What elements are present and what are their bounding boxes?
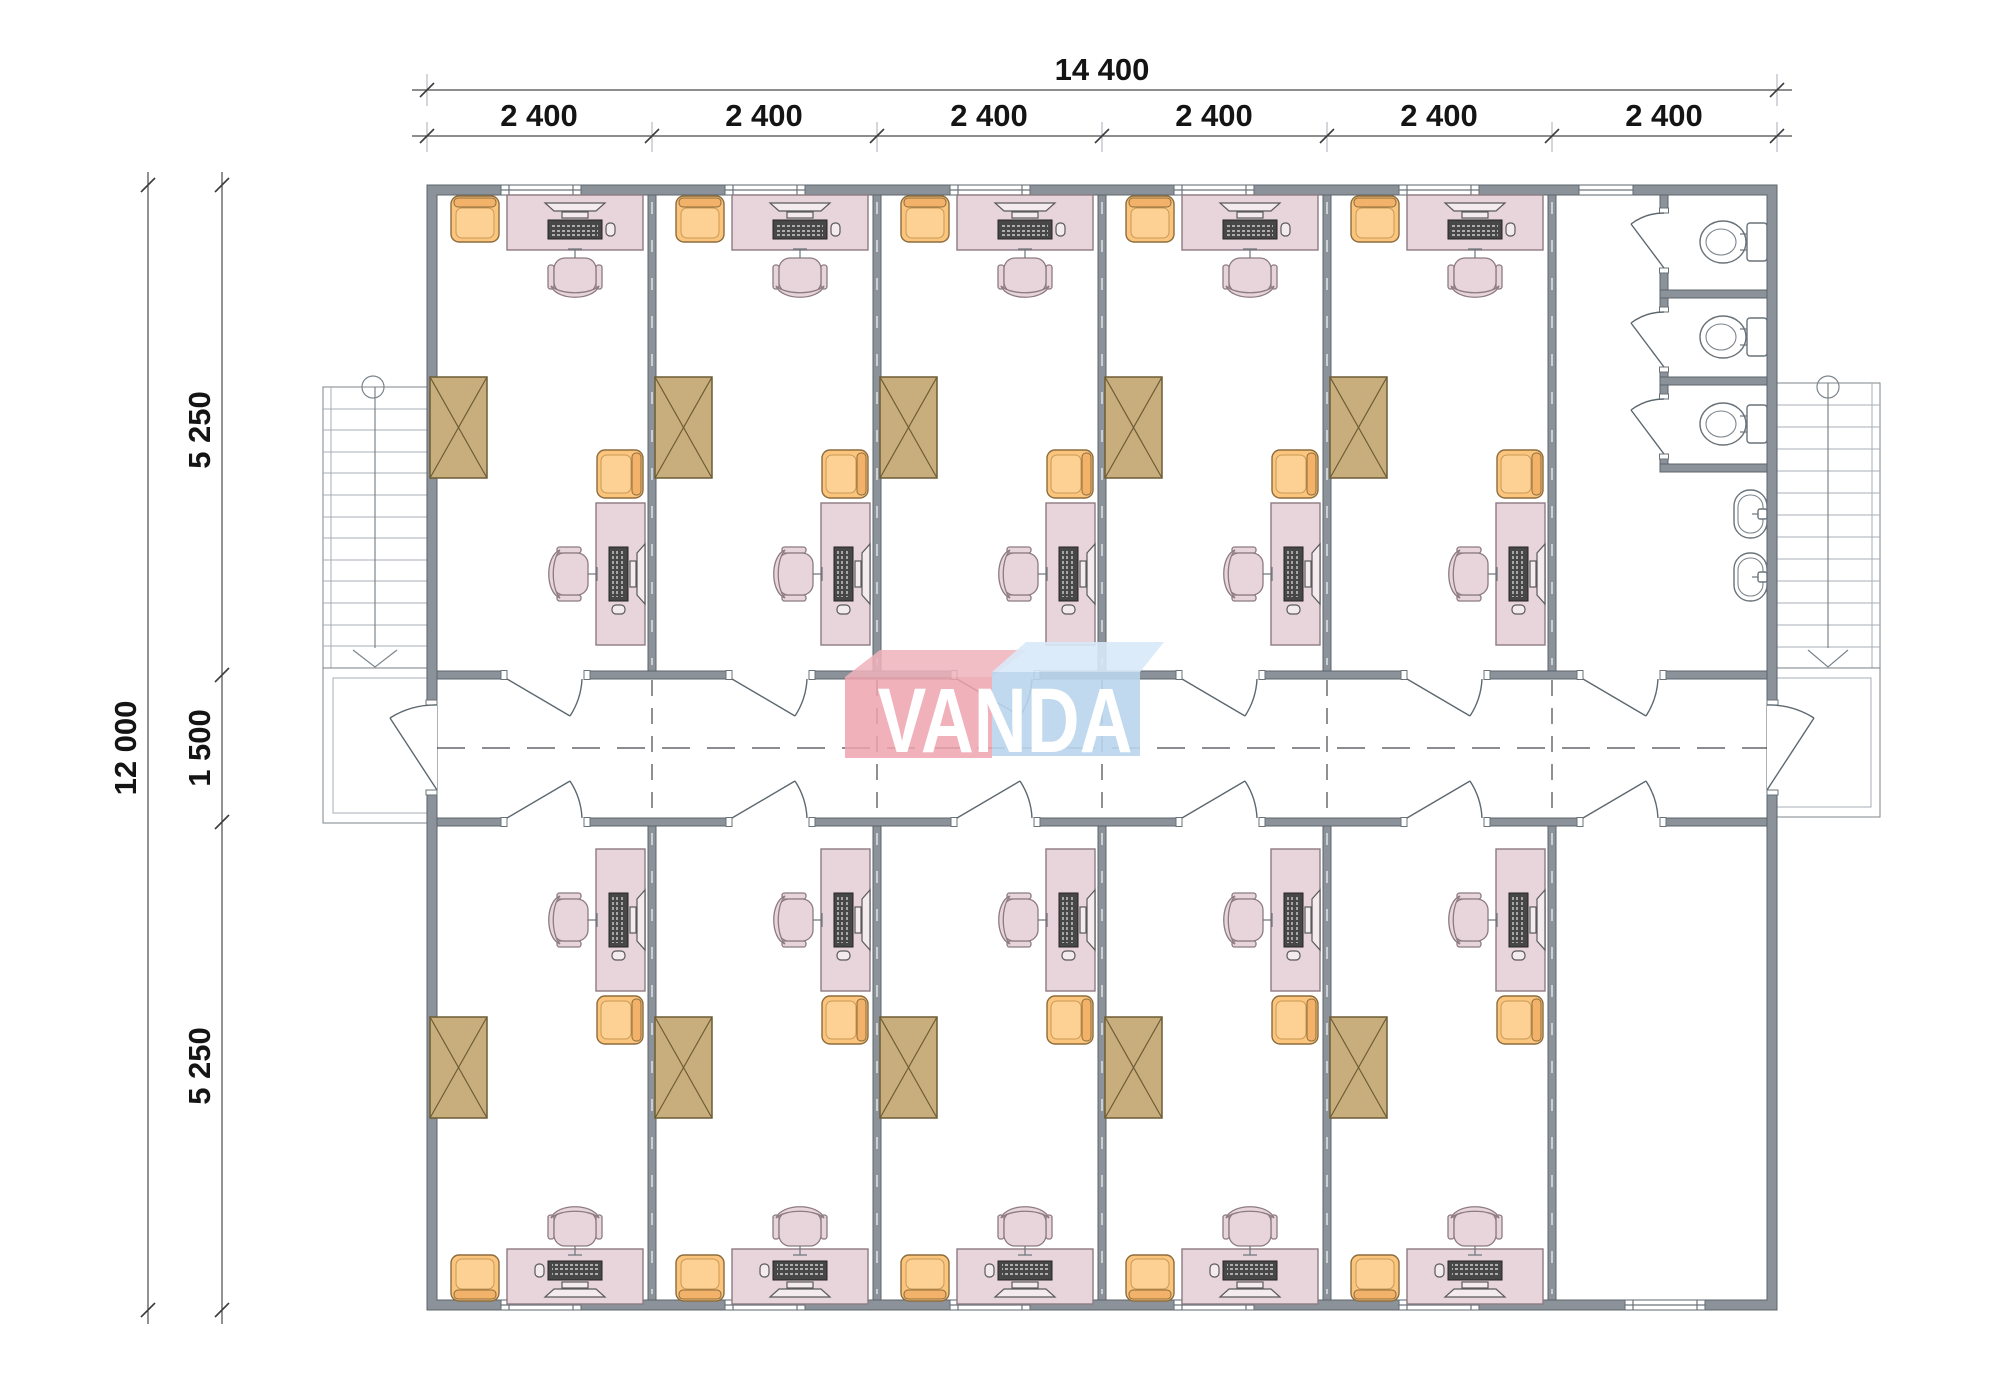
- office-room-bottom-3: [880, 849, 1095, 1304]
- dim-rooms-top-depth: 5 250: [182, 391, 217, 469]
- office-room-top-3: [880, 195, 1095, 645]
- porch-left: [323, 668, 427, 823]
- dimension-left: 12 000 5 250 1 500 5 250: [108, 172, 229, 1324]
- dim-bay-5: 2 400: [1400, 98, 1478, 133]
- toilet-icon: [1700, 403, 1767, 445]
- offices-top-row: [430, 195, 1545, 645]
- dim-rooms-bottom-depth: 5 250: [182, 1027, 217, 1105]
- office-room-bottom-2: [655, 849, 870, 1304]
- staircase-right: [1777, 376, 1880, 668]
- stall-door-3: [1631, 394, 1669, 459]
- office-room-bottom-1: [430, 849, 645, 1304]
- door-washroom: [1577, 670, 1666, 716]
- porch-right: [1777, 668, 1880, 817]
- dimension-top: 14 400 2 400 2 400 2 400 2 400 2 400 2 4…: [412, 52, 1792, 152]
- door-office-top-1: [501, 670, 590, 716]
- office-room-bottom-4: [1105, 849, 1320, 1304]
- office-room-top-4: [1105, 195, 1320, 645]
- stall-door-2: [1631, 307, 1669, 372]
- door-room-bottom-6: [1577, 781, 1666, 827]
- dim-bay-6: 2 400: [1625, 98, 1703, 133]
- office-room-top-5: [1330, 195, 1545, 645]
- dim-bay-1: 2 400: [500, 98, 578, 133]
- door-office-bottom-4: [1176, 781, 1265, 827]
- office-room-top-1: [430, 195, 645, 645]
- dim-bay-4: 2 400: [1175, 98, 1253, 133]
- door-office-top-4: [1176, 670, 1265, 716]
- dim-bay-2: 2 400: [725, 98, 803, 133]
- toilet-icon: [1700, 221, 1767, 263]
- sink-icon: [1734, 490, 1767, 538]
- staircase-left: [323, 376, 427, 668]
- door-office-bottom-3: [951, 781, 1040, 827]
- door-office-bottom-2: [726, 781, 815, 827]
- dim-corridor-width: 1 500: [182, 709, 217, 787]
- washroom: [1631, 195, 1767, 601]
- office-room-top-2: [655, 195, 870, 645]
- floor-plan-drawing: VANDA 14 400 2 400 2 400 2 400 2 400 2 4…: [0, 0, 2000, 1380]
- stall-door-1: [1631, 208, 1669, 273]
- toilet-icon: [1700, 316, 1767, 358]
- floor-plan-page: VANDA 14 400 2 400 2 400 2 400 2 400 2 4…: [0, 0, 2000, 1380]
- dim-bay-3: 2 400: [950, 98, 1028, 133]
- offices-bottom-row: [430, 849, 1545, 1304]
- logo-blue-top-face: [992, 642, 1164, 672]
- door-office-bottom-5: [1401, 781, 1490, 827]
- door-office-bottom-1: [501, 781, 590, 827]
- sink-icon: [1734, 553, 1767, 601]
- door-office-top-2: [726, 670, 815, 716]
- dim-total-width: 14 400: [1055, 52, 1150, 87]
- dim-total-height: 12 000: [108, 701, 143, 796]
- door-office-top-5: [1401, 670, 1490, 716]
- office-room-bottom-5: [1330, 849, 1545, 1304]
- logo: VANDA: [845, 642, 1164, 772]
- logo-text: VANDA: [878, 670, 1133, 772]
